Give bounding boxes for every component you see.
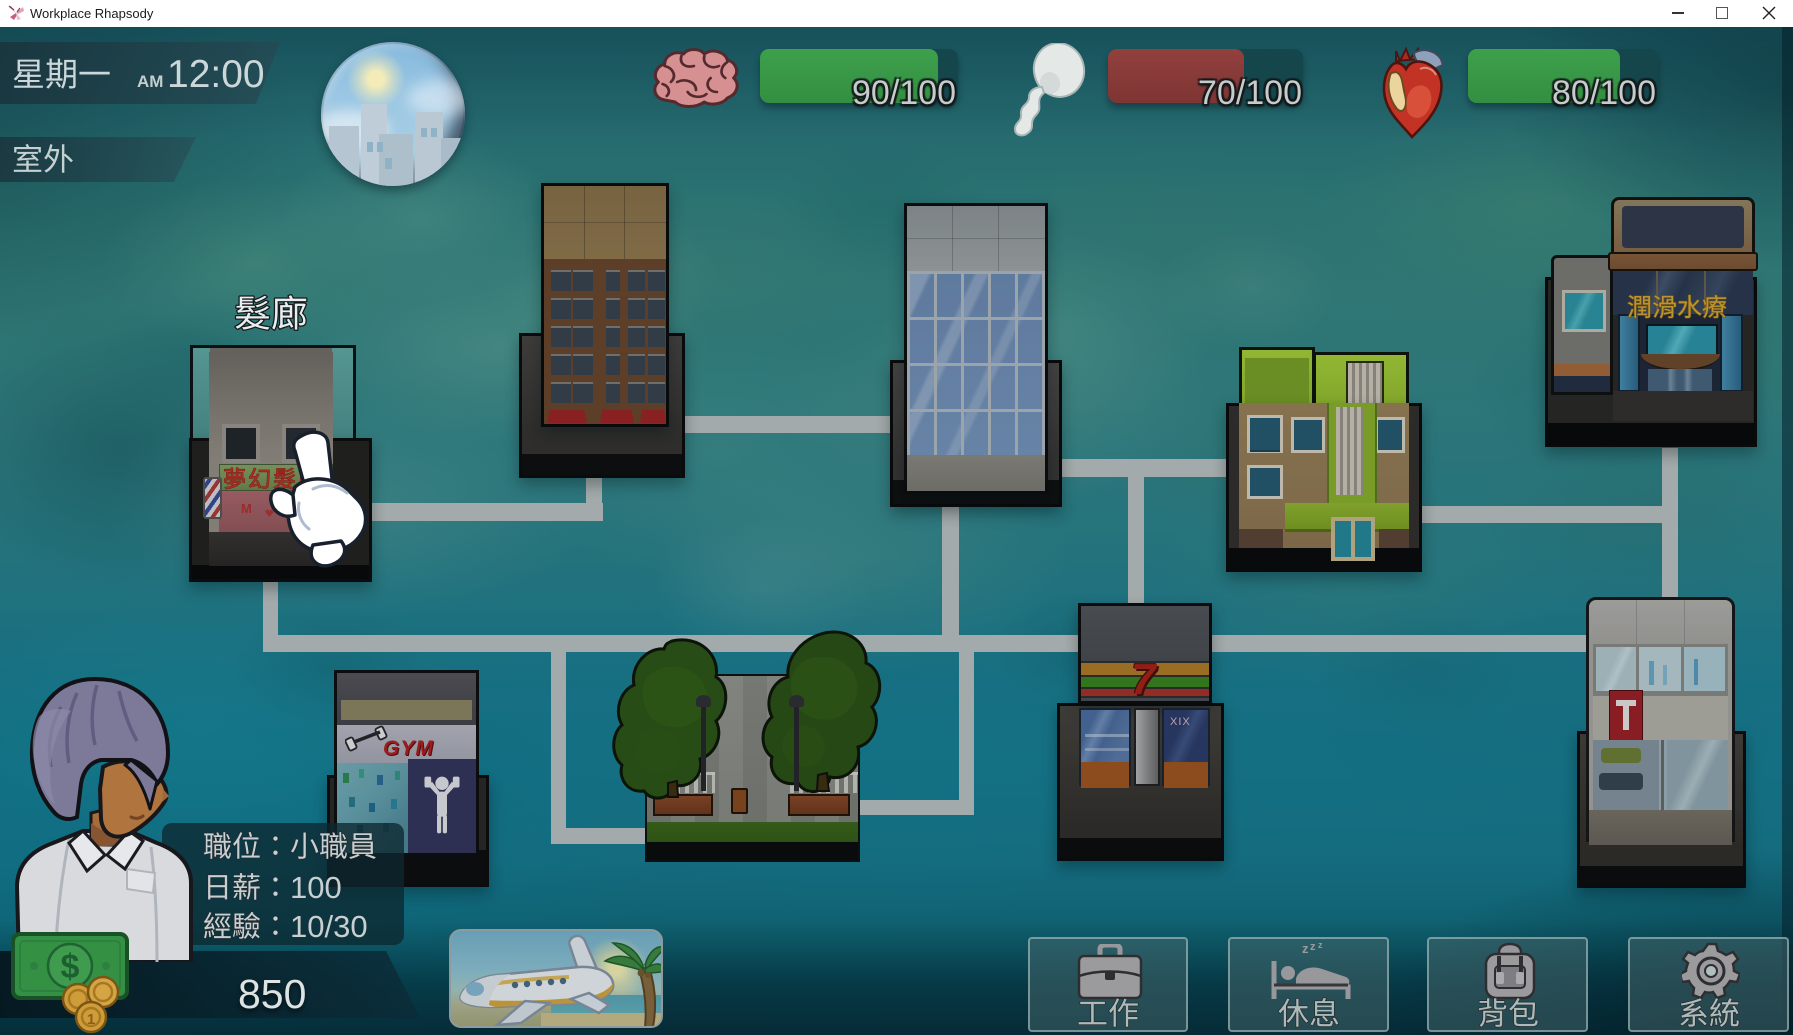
svg-text:1: 1: [87, 1011, 95, 1028]
svg-text:z: z: [1310, 941, 1316, 953]
svg-text:z: z: [1318, 941, 1323, 950]
svg-text:z: z: [1302, 941, 1309, 956]
